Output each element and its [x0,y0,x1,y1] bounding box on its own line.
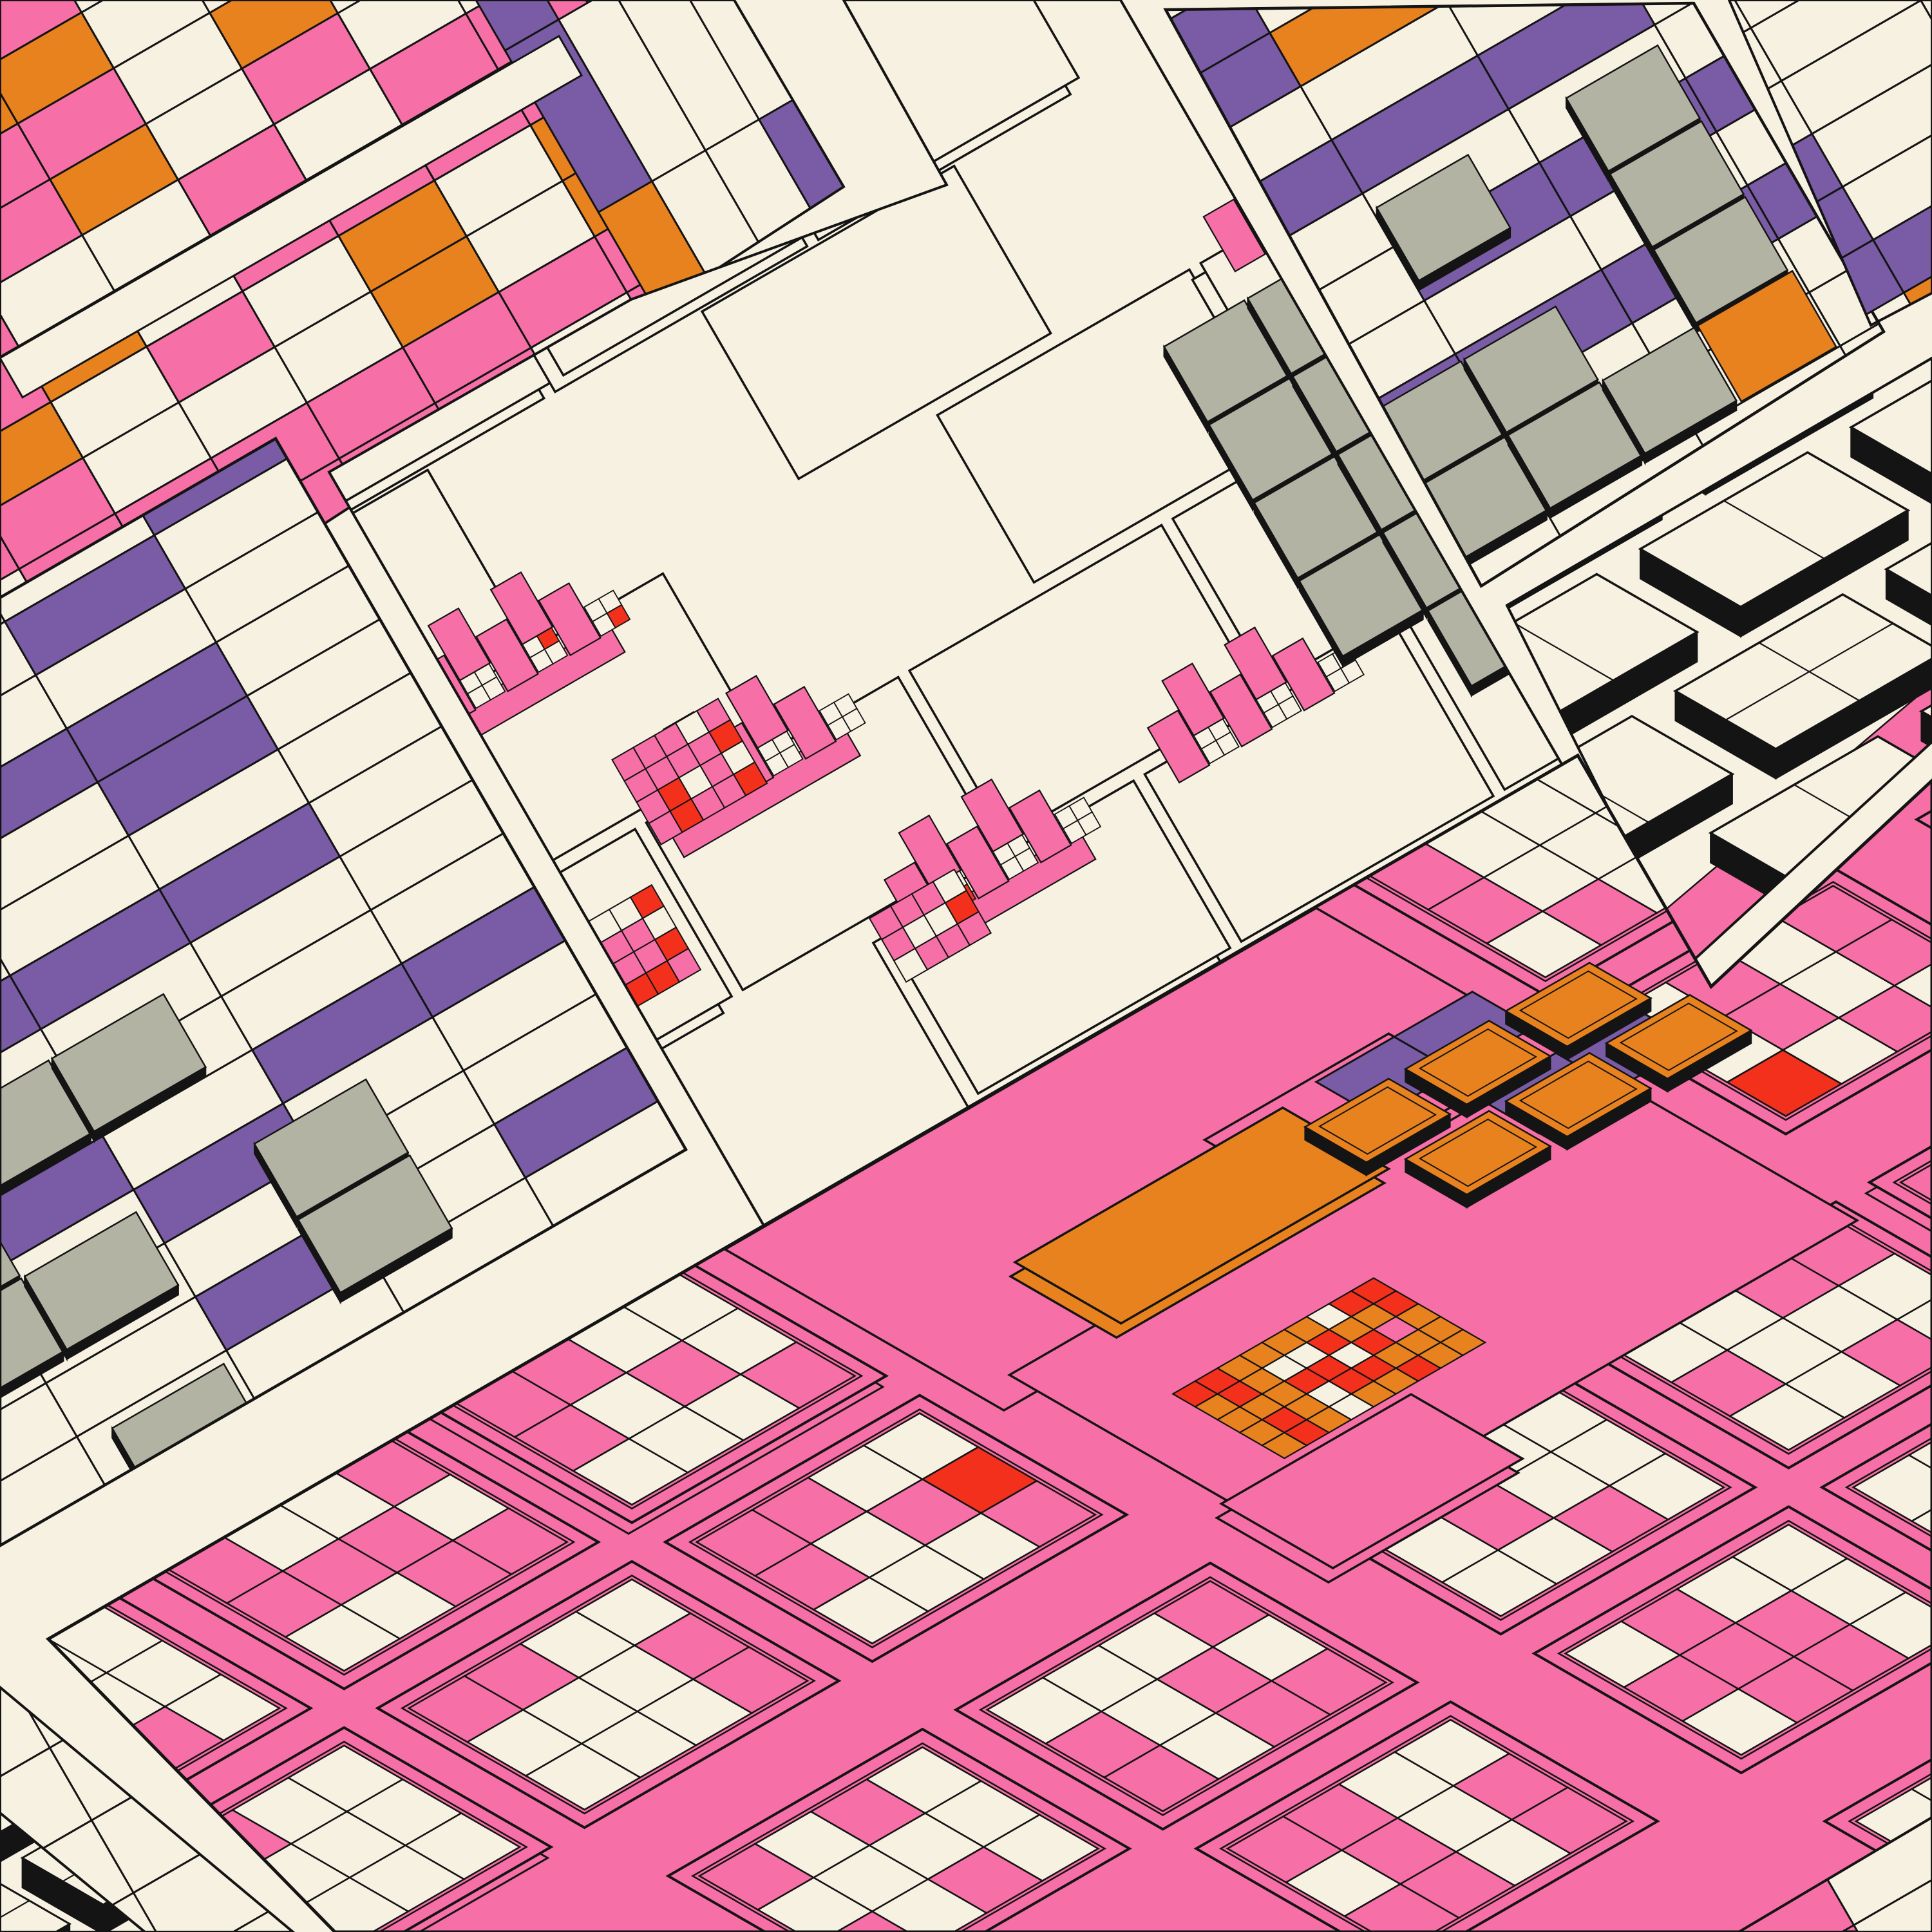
generative-isometric-artwork [0,0,1932,1932]
artwork-canvas [0,0,1932,1932]
